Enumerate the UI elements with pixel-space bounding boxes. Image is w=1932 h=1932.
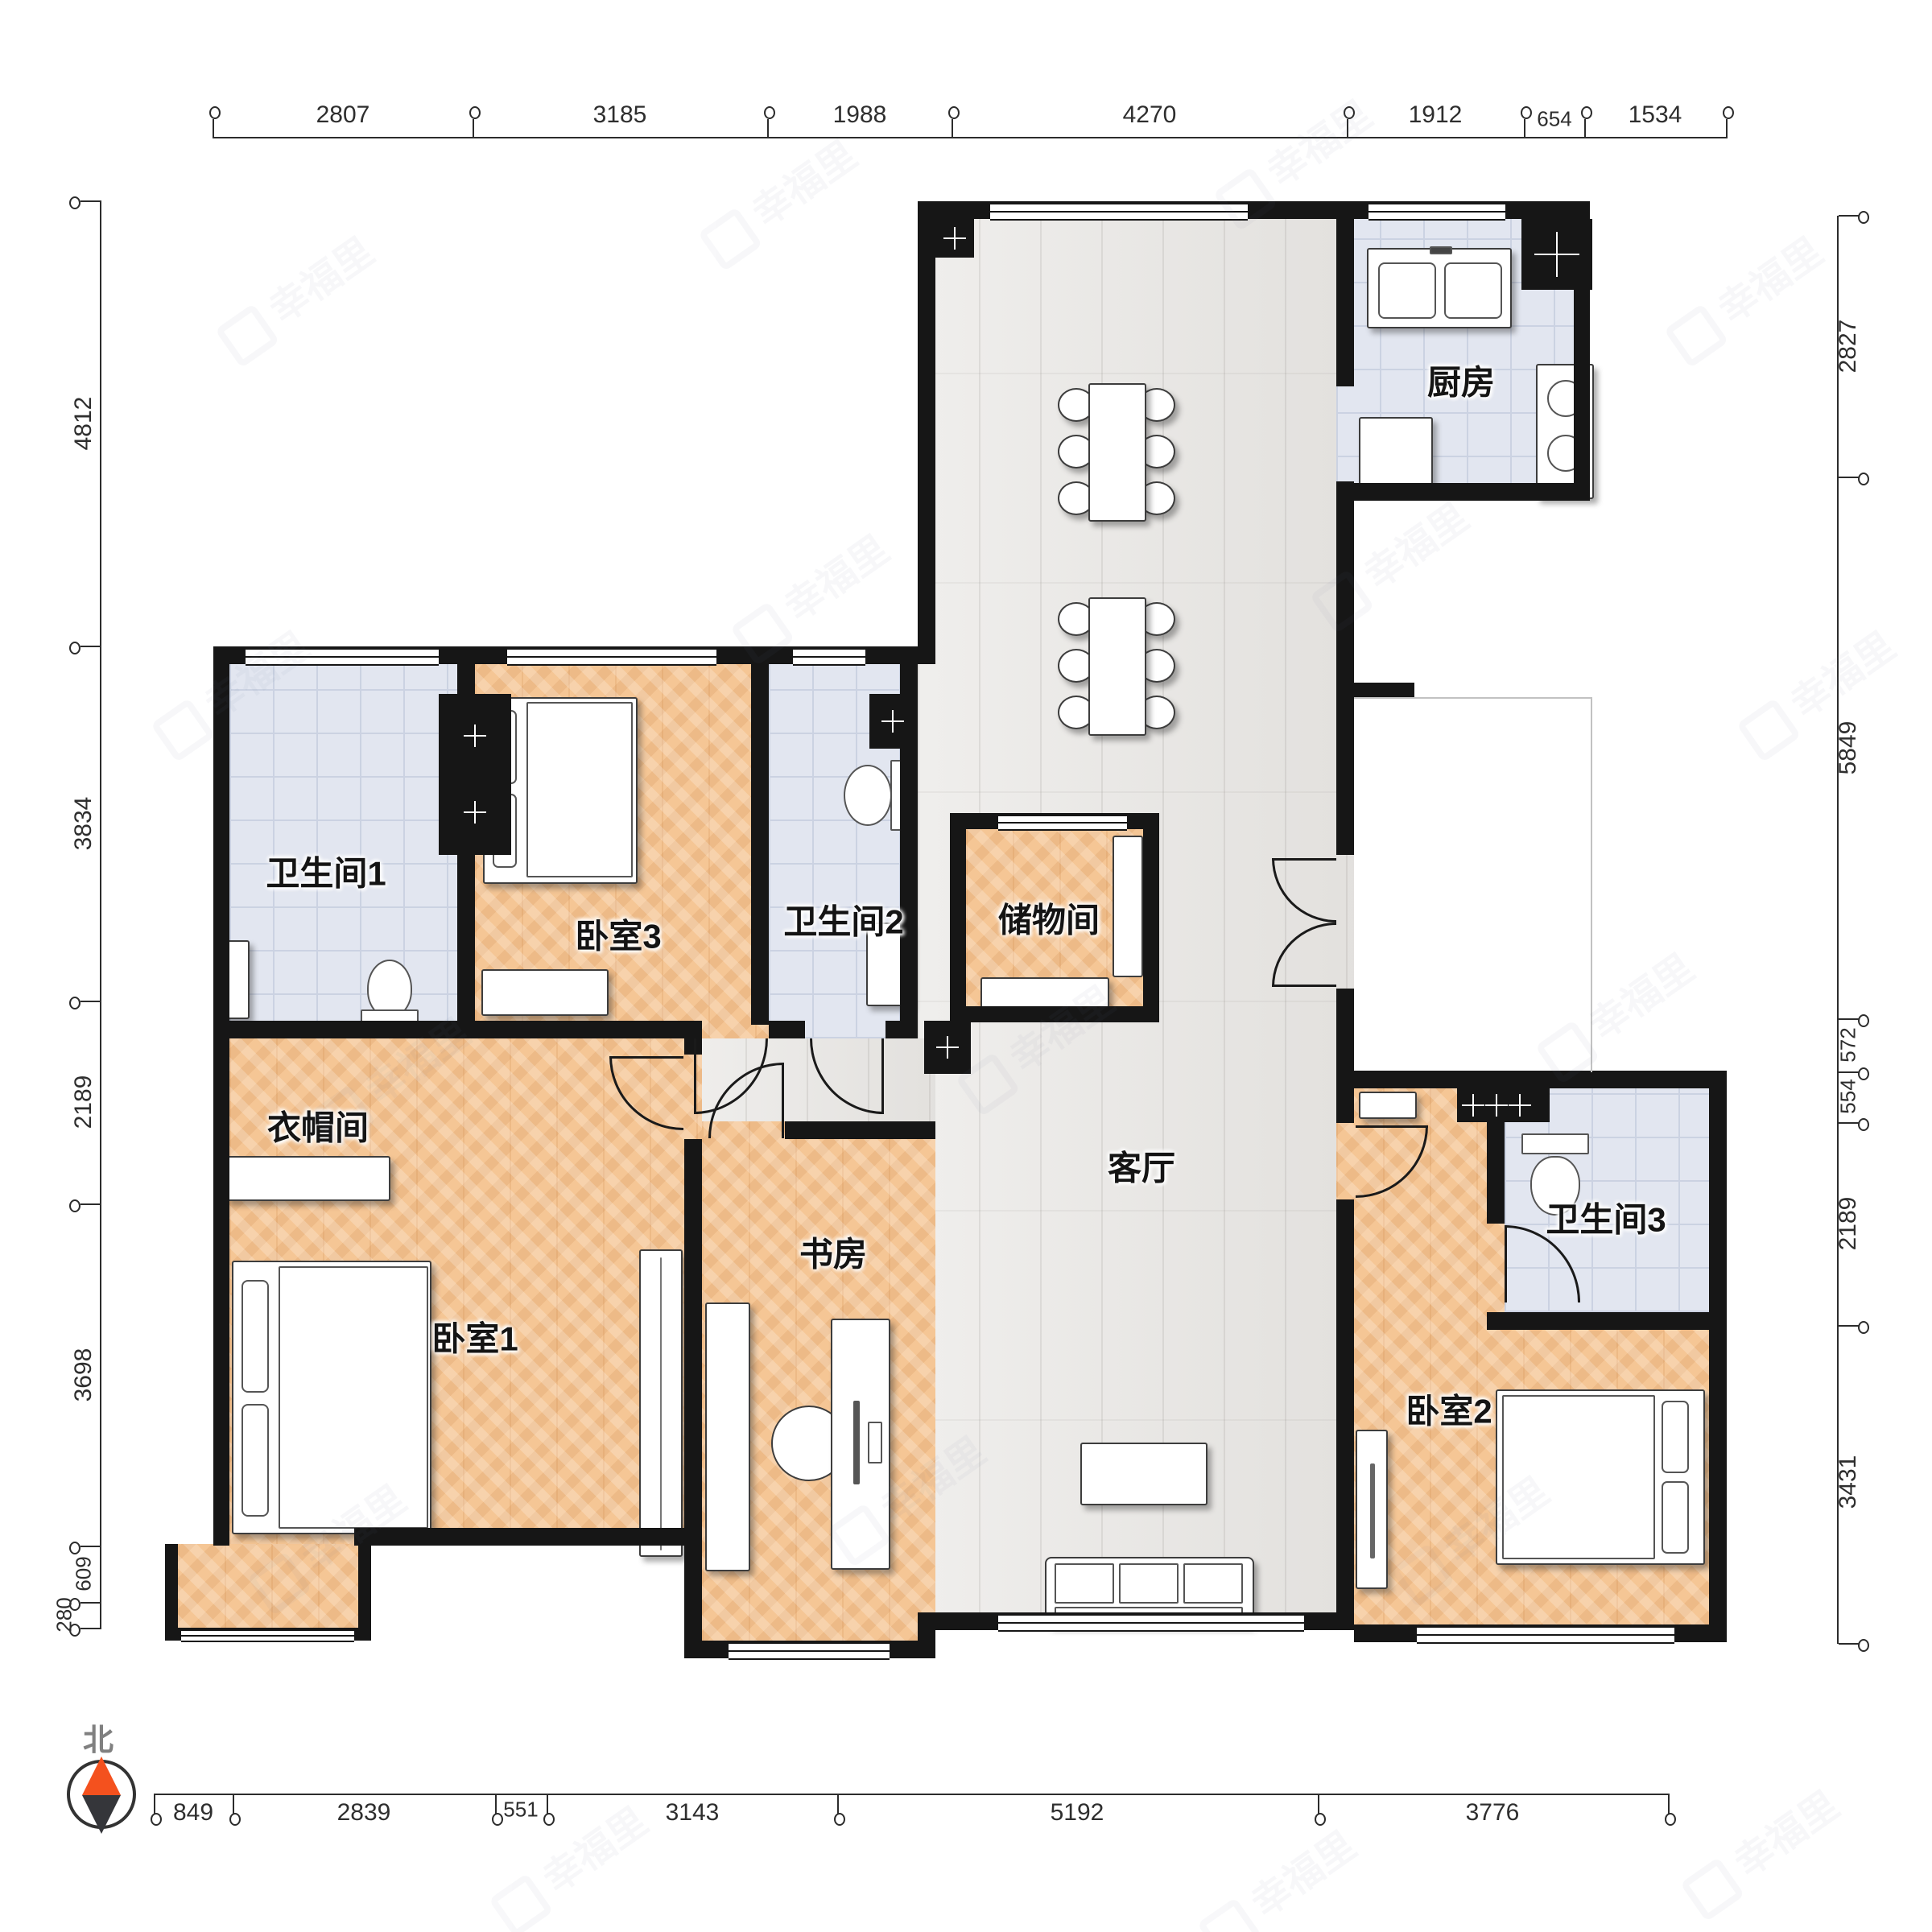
cloak-shelf [225, 1156, 390, 1201]
dim-tick [1839, 1325, 1860, 1327]
dim-tick-circle [1858, 211, 1869, 224]
vent-icon [464, 724, 486, 747]
dim-tick [495, 1794, 497, 1814]
wall [769, 1021, 805, 1038]
sink-basin [1378, 262, 1436, 319]
watermark: 幸福里 [724, 519, 899, 667]
dimension-label: 2189 [70, 1075, 97, 1129]
room-label-bed3: 卧室3 [575, 910, 661, 959]
duvet [526, 702, 633, 877]
wall [1143, 813, 1159, 1022]
double-bed [232, 1261, 431, 1534]
dim-tick [1726, 119, 1728, 138]
dim-tick [1668, 1794, 1670, 1814]
tv [1370, 1463, 1375, 1558]
watermark: 幸福里 [1657, 221, 1833, 369]
wall [918, 1612, 935, 1658]
dimension-label: 4270 [1123, 101, 1177, 129]
compass-south-needle [82, 1795, 121, 1834]
dim-tick [1839, 215, 1860, 217]
wall [950, 813, 966, 1022]
dim-tick-circle [69, 196, 80, 209]
dimension-label: 5849 [1835, 721, 1862, 775]
toilet-tank [1521, 1133, 1589, 1154]
storage-closet [1113, 836, 1143, 977]
pillow [1662, 1401, 1689, 1473]
dim-tick [213, 119, 214, 138]
dim-tick-circle [209, 106, 221, 119]
room-label-bath2: 卫生间2 [783, 895, 903, 944]
dim-tick-circle [1858, 1321, 1869, 1334]
room-label-study: 书房 [799, 1228, 867, 1277]
wall [1487, 1312, 1727, 1330]
watermark: 幸福里 [691, 125, 867, 272]
dimension-label: 1534 [1629, 101, 1682, 129]
dimension-label: 1988 [833, 101, 887, 129]
window [998, 815, 1127, 831]
dimension-label: 554 [1836, 1079, 1861, 1113]
dimension-label: 2807 [316, 101, 370, 129]
dimension-label: 2189 [1835, 1197, 1862, 1251]
bay-window [181, 1629, 354, 1642]
dim-tick [1524, 119, 1525, 138]
dimension-label: 5192 [1051, 1799, 1104, 1827]
dim-tick-circle [69, 642, 80, 654]
window [507, 648, 716, 666]
vent-icon [943, 227, 966, 250]
dim-tick-circle [543, 1813, 555, 1826]
dim-tick [80, 646, 101, 647]
dimension-label: 654 [1537, 107, 1571, 132]
dim-tick [1839, 477, 1860, 478]
room-label-storage: 储物间 [998, 894, 1100, 943]
wall [354, 1528, 702, 1546]
bedroom3-cabinet [481, 969, 609, 1016]
room-label-bed2: 卧室2 [1406, 1385, 1492, 1434]
dimension-line [155, 1794, 1669, 1795]
dimension-label: 3143 [666, 1799, 720, 1827]
vent-icon [881, 710, 904, 733]
dimension-label: 280 [52, 1597, 77, 1632]
dim-tick [1839, 1122, 1860, 1124]
window [729, 1642, 890, 1660]
vent-icon [464, 801, 486, 824]
fridge [1359, 417, 1433, 486]
watermark: 幸福里 [1191, 1815, 1366, 1932]
dim-tick [1584, 119, 1586, 138]
dimension-label: 609 [72, 1556, 97, 1591]
wall [1354, 1071, 1727, 1088]
dimension-label: 3431 [1835, 1455, 1862, 1509]
dim-tick-circle [69, 1199, 80, 1212]
dimension-line [1837, 216, 1839, 1644]
dimension-label: 3776 [1466, 1799, 1520, 1827]
sofa-cushion [1119, 1563, 1179, 1604]
dim-tick-circle [492, 1813, 503, 1826]
dim-tick-circle [1858, 1639, 1869, 1652]
wall [1354, 483, 1590, 501]
wall [1336, 989, 1354, 1123]
dimension-label: 3698 [70, 1348, 97, 1402]
wardrobe [639, 1249, 683, 1557]
watermark: 幸福里 [1674, 1775, 1849, 1922]
kitchen-sink [1367, 248, 1512, 328]
tv-stand [1356, 1430, 1388, 1589]
flue-block [439, 694, 511, 855]
dimension-label: 1912 [1409, 101, 1463, 129]
keyboard [868, 1422, 882, 1463]
bedroom2-shelf [1359, 1092, 1417, 1119]
dim-tick [1839, 1071, 1860, 1073]
room-label-kitchen: 厨房 [1427, 356, 1495, 405]
dim-tick [154, 1794, 155, 1814]
vent-icon [1485, 1094, 1508, 1117]
pillow [1662, 1481, 1689, 1554]
dim-tick-circle [1858, 1014, 1869, 1027]
dim-tick-circle [1723, 106, 1734, 119]
wall [684, 1139, 702, 1658]
dimension-label: 4812 [70, 397, 97, 451]
dimension-label: 3834 [70, 797, 97, 851]
window [990, 203, 1248, 221]
vent-icon [1462, 1094, 1484, 1117]
wall [1336, 201, 1354, 386]
dining-table [1088, 597, 1146, 736]
dim-tick [1318, 1794, 1319, 1814]
dim-tick [473, 119, 474, 138]
dining-table [1088, 383, 1146, 522]
dim-tick-circle [1858, 1118, 1869, 1131]
dim-tick-circle [948, 106, 960, 119]
faucet [1430, 246, 1452, 254]
watermark: 幸福里 [1529, 938, 1704, 1085]
dimension-label: 2839 [337, 1799, 391, 1827]
wall [885, 1021, 918, 1038]
wall [1336, 1199, 1354, 1630]
room-label-bath3: 卫生间3 [1546, 1193, 1666, 1242]
dim-tick [1839, 1643, 1860, 1645]
sofa-cushion [1055, 1563, 1114, 1604]
dim-tick [837, 1794, 839, 1814]
wall [918, 201, 935, 664]
dim-tick-circle [764, 106, 775, 119]
dimension-label: 849 [173, 1799, 213, 1827]
wall [165, 1544, 178, 1628]
room-label-bath1: 卫生间1 [266, 847, 386, 896]
dim-tick [80, 1628, 101, 1629]
dimension-label: 2827 [1835, 320, 1862, 374]
room-label-living: 客厅 [1108, 1141, 1175, 1191]
wall [358, 1544, 371, 1628]
vent-icon [1534, 232, 1579, 277]
dimension-line [213, 137, 1727, 138]
dim-tick-circle [1858, 473, 1869, 485]
wall [751, 664, 769, 1025]
dim-tick-circle [1665, 1813, 1676, 1826]
sofa-cushion [1183, 1563, 1243, 1604]
dimension-label: 3185 [593, 101, 647, 129]
pillow [242, 1404, 269, 1517]
pillow [242, 1280, 269, 1393]
vent-icon [1509, 1094, 1531, 1117]
dim-tick [80, 200, 101, 202]
dim-tick-circle [834, 1813, 845, 1826]
dim-tick [233, 1794, 234, 1814]
dim-tick [80, 1602, 101, 1604]
sink-basin [1444, 262, 1502, 319]
coffee-table [1080, 1443, 1207, 1505]
dim-tick [767, 119, 769, 138]
dim-tick-circle [229, 1813, 241, 1826]
wardrobe-divider [660, 1257, 662, 1550]
room-label-bed1: 卧室1 [431, 1312, 518, 1361]
dimension-label: 551 [503, 1798, 538, 1823]
wall [213, 646, 229, 1546]
dim-tick-circle [151, 1813, 162, 1826]
wall [1336, 481, 1354, 855]
window [793, 648, 865, 666]
monitor [853, 1401, 860, 1484]
dim-tick [80, 1546, 101, 1547]
wall [1354, 683, 1414, 699]
window [998, 1614, 1304, 1632]
watermark: 幸福里 [1730, 616, 1905, 763]
dim-tick [80, 1203, 101, 1205]
dim-tick [1839, 1018, 1860, 1020]
dim-tick-circle [69, 997, 80, 1009]
dim-tick-circle [1581, 106, 1592, 119]
lobby-line [1354, 697, 1592, 699]
wall [785, 1121, 935, 1139]
dim-tick [547, 1794, 548, 1814]
watermark: 幸福里 [208, 221, 384, 369]
north-label: 北 [83, 1715, 114, 1760]
wall [1709, 1088, 1727, 1624]
dim-tick-circle [69, 1542, 80, 1554]
dimension-label: 572 [1836, 1027, 1861, 1062]
window [1368, 203, 1505, 221]
floor-plan: 厨房 卫生间1 卧室3 卫生间2 储物间 客厅 衣帽间 卧室1 书房 卫生间3 … [0, 0, 1932, 1932]
dim-tick-circle [1521, 106, 1532, 119]
dim-tick [80, 1001, 101, 1002]
window [1417, 1626, 1674, 1644]
dimension-line [100, 201, 101, 1629]
compass-north-needle [82, 1757, 121, 1795]
bookcase [705, 1302, 750, 1571]
toilet-bowl [844, 765, 892, 826]
dim-tick-circle [469, 106, 481, 119]
vent-icon [936, 1036, 959, 1059]
dim-tick [952, 119, 953, 138]
